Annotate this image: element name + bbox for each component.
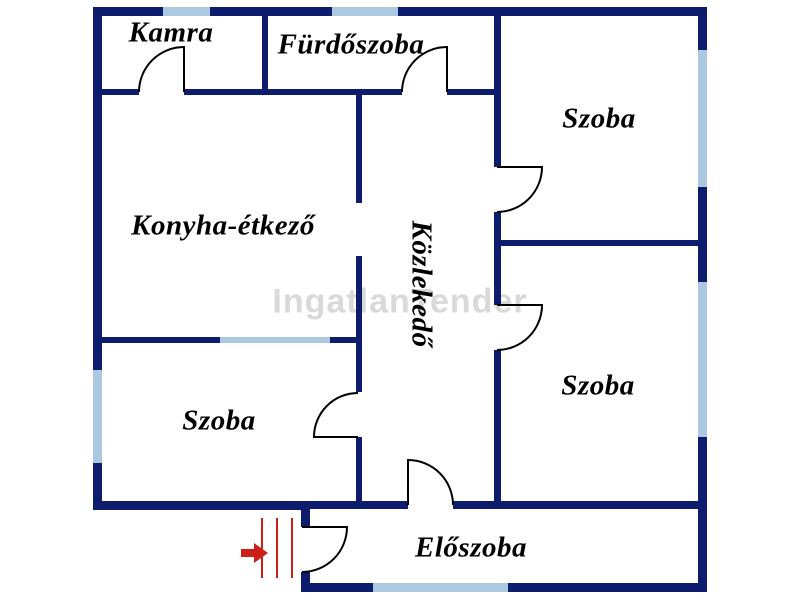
entrance-arrow-icon (241, 543, 268, 563)
door-and-marker-overlay (0, 0, 800, 600)
room-label-furdoszoba: Fürdőszoba (278, 29, 425, 62)
room-label-szoba-bottom-left: Szoba (182, 405, 255, 438)
kamra-door (139, 47, 184, 92)
room-label-eloszoba: Előszoba (415, 532, 527, 565)
room-label-szoba-top-right: Szoba (562, 103, 635, 136)
szoba-middle-right-door (497, 305, 542, 350)
room-label-kozlekedo: Közlekedő (405, 221, 438, 348)
szoba-bottom-left-door (314, 393, 358, 437)
entrance-door (302, 527, 347, 572)
eloszoba-corridor-door (408, 460, 453, 505)
room-label-konyha-etkezo: Konyha-étkező (131, 210, 315, 243)
entrance-steps-icon (262, 518, 292, 578)
room-label-szoba-middle-right: Szoba (561, 370, 634, 403)
szoba-top-right-door (497, 167, 542, 212)
room-label-kamra: Kamra (129, 17, 214, 50)
floorplan-canvas: IngatlanTender (0, 0, 800, 600)
